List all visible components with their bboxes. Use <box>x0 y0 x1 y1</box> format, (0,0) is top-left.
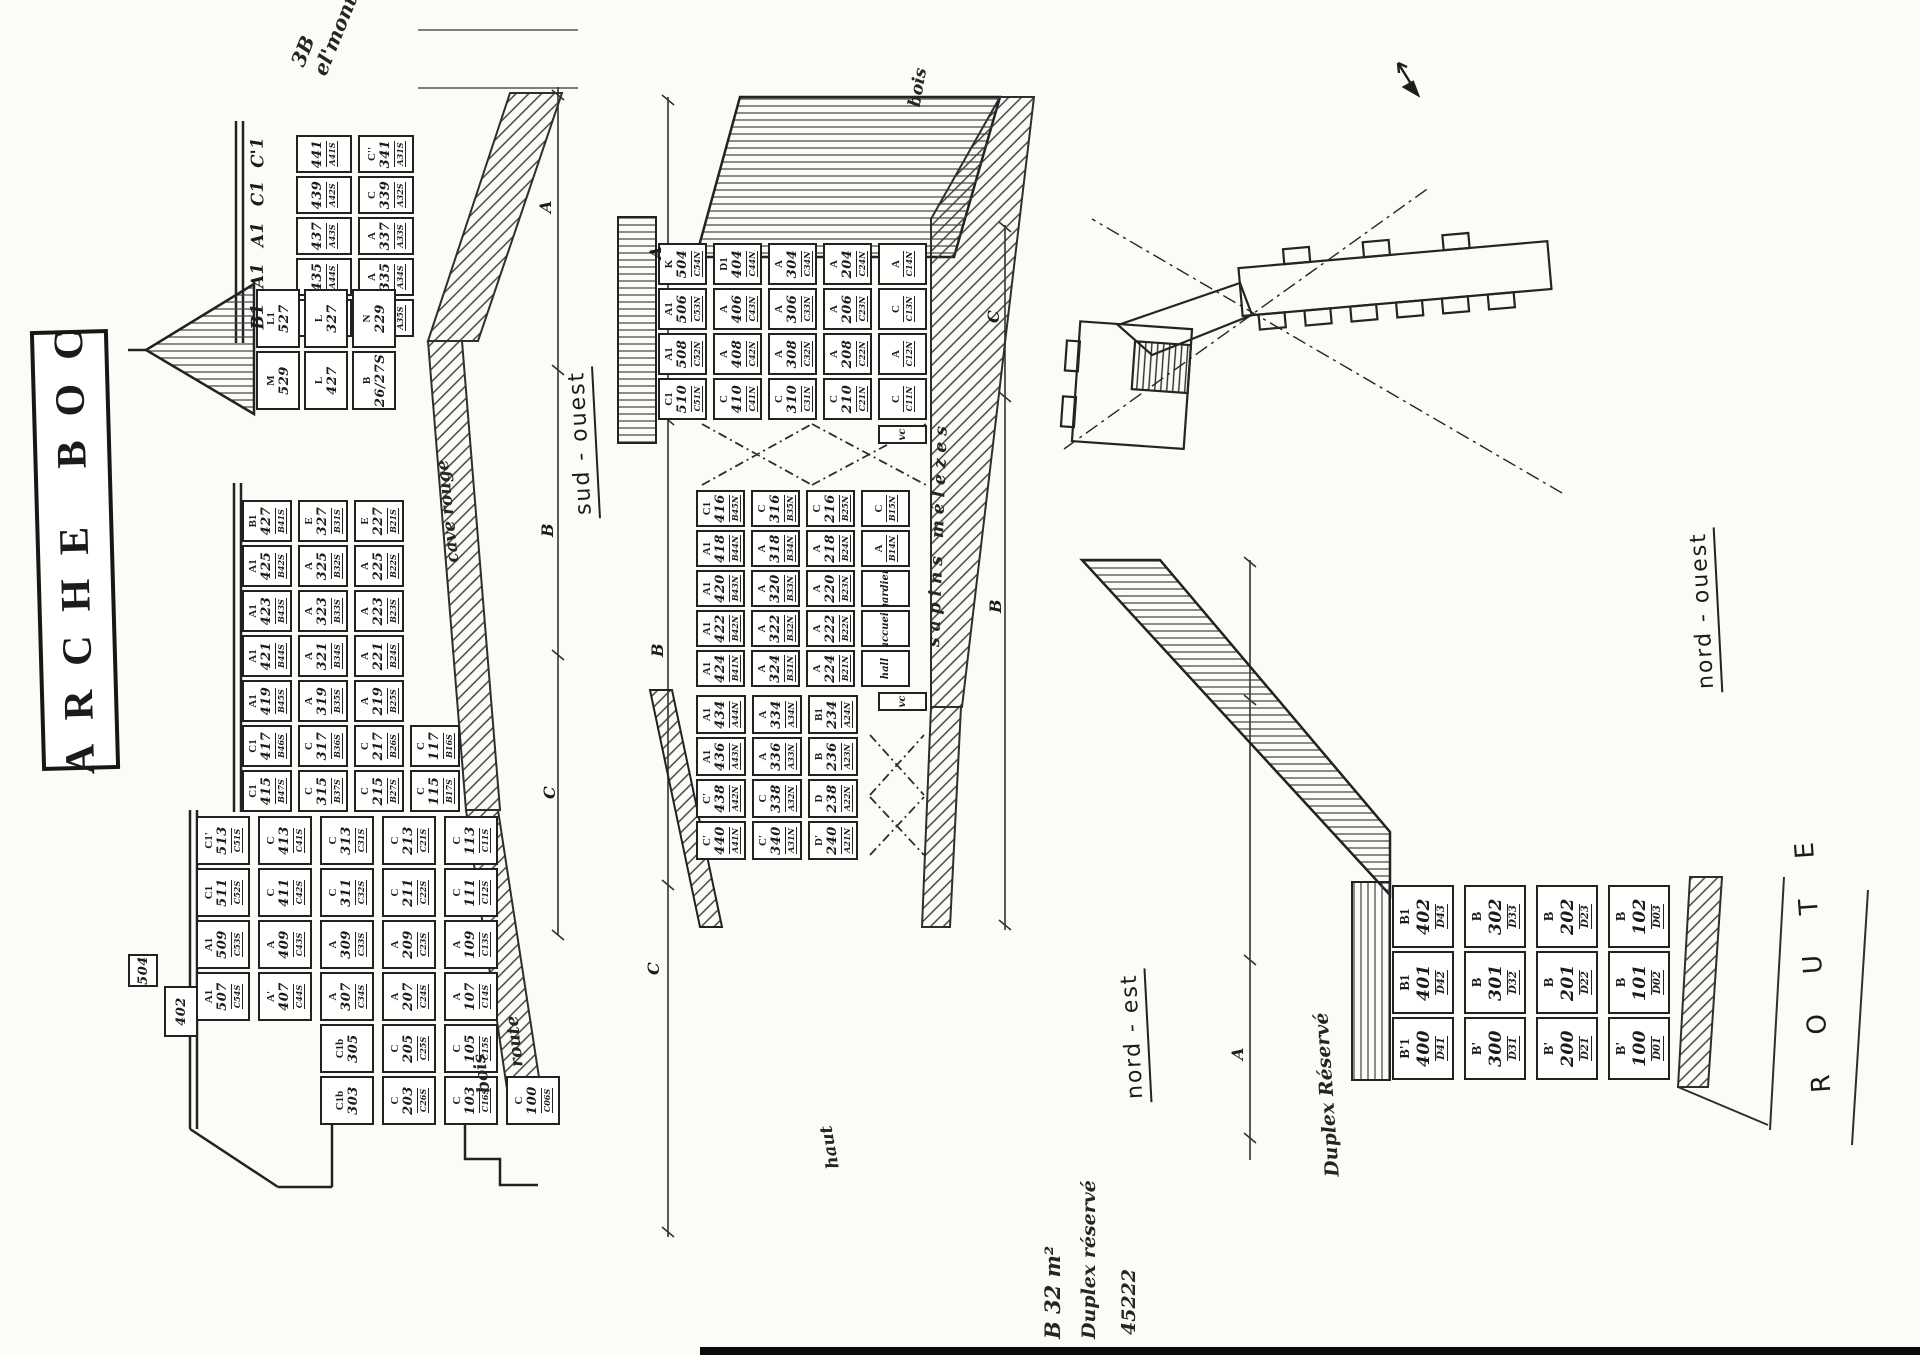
unit-code: B35S <box>331 688 343 714</box>
unit-type: A <box>265 941 277 949</box>
unit-number: 200 <box>1558 1030 1578 1067</box>
unit-type: B' <box>1614 1042 1630 1055</box>
unit-type: B1 <box>247 515 259 528</box>
unit-cell-206: A206C23N <box>823 288 872 330</box>
unit-code: B31S <box>331 508 343 534</box>
unit-cell: AB14N <box>861 530 910 567</box>
unit-number: 511 <box>215 878 230 907</box>
unit-cell-427: B1427B41S <box>242 500 292 542</box>
unit-code: B23S <box>387 598 399 624</box>
unit-number: 303 <box>346 1086 361 1115</box>
unit-number: 209 <box>401 930 416 959</box>
unit-code: D23 <box>1579 904 1592 929</box>
unit-code: A21N <box>841 827 853 854</box>
unit-code: A34S <box>394 264 406 289</box>
unit-number: 327 <box>315 507 330 536</box>
unit-number: 321 <box>315 642 330 671</box>
unit-type: C <box>359 787 371 795</box>
unit-type: C <box>451 889 463 897</box>
unit-cell-411: C411C42S <box>258 868 312 917</box>
unit-cell-229: N229 <box>352 289 396 348</box>
unit-code: B41S <box>275 508 287 534</box>
unit-type: E <box>359 517 371 524</box>
unit-number: 211 <box>401 878 416 907</box>
unit-number: 409 <box>277 930 292 959</box>
unit-number: 224 <box>823 654 838 683</box>
unit-cell-202: B202D23 <box>1536 885 1598 948</box>
unit-number: 513 <box>215 826 230 855</box>
unit-cell-101: B101D02 <box>1608 951 1670 1014</box>
unit-cell-416: C1416B45N <box>696 490 745 527</box>
unit-number: 304 <box>785 250 800 279</box>
unit-cell-205: C205C25S <box>382 1024 436 1073</box>
unit-cell-337: A337A33S <box>358 217 414 255</box>
unit-cell-401: B1401D42 <box>1392 951 1454 1014</box>
unit-number: 340 <box>769 826 784 855</box>
unit-number: 310 <box>785 385 800 414</box>
unit-cell-320: A320B33N <box>751 570 800 607</box>
unit-cell-300: B'300D31 <box>1464 1017 1526 1080</box>
unit-number: 302 <box>1486 898 1506 935</box>
dim-letter: C <box>644 962 663 975</box>
unit-type: A1 <box>701 750 713 763</box>
unit-type: K <box>663 260 675 269</box>
unit-number: 337 <box>378 222 393 251</box>
unit-cell-402: B1402D43 <box>1392 885 1454 948</box>
unit-number: 406 <box>730 295 745 324</box>
grid-header-so_upper: A1 <box>247 255 268 297</box>
unit-cell-440: C'440A41N <box>696 821 746 860</box>
unit-cell-307: A307C34S <box>320 972 374 1021</box>
unit-cell-427: L427 <box>304 351 348 410</box>
unit-type: B <box>1614 978 1630 987</box>
dim-letter: A <box>646 247 665 259</box>
unit-cell-210: C210C21N <box>823 378 872 420</box>
unit-number: 437 <box>310 222 325 251</box>
unit-type: N <box>361 315 373 323</box>
unit-code: B33S <box>331 598 343 624</box>
unit-number: 504 <box>136 956 151 985</box>
unit-number: 408 <box>730 340 745 369</box>
unit-type: C <box>303 742 315 750</box>
unit-number: 109 <box>463 930 478 959</box>
drawing-linework <box>0 0 1920 1355</box>
unit-type: C' <box>701 793 713 804</box>
unit-cell-234: B1234A24N <box>808 695 858 734</box>
unit-type: A <box>756 665 768 673</box>
unit-number: 336 <box>769 742 784 771</box>
unit-type: A <box>718 305 730 313</box>
unit-type: A <box>718 350 730 358</box>
unit-cell-316: C316B35N <box>751 490 800 527</box>
unit-code: B22N <box>839 615 851 642</box>
unit-code: C34S <box>355 984 367 1009</box>
unit-number: 113 <box>463 826 478 855</box>
unit-cell-413: C413C41S <box>258 816 312 865</box>
unit-code: C42N <box>746 341 758 368</box>
unit-number: 205 <box>401 1034 416 1063</box>
unit-number: 508 <box>675 340 690 369</box>
unit-code: B27S <box>387 778 399 804</box>
unit-type: C <box>265 837 277 845</box>
unit-number: 324 <box>768 654 783 683</box>
unit-cell-216: C216B25N <box>806 490 855 527</box>
unit-cell-305: C1b305 <box>320 1024 374 1073</box>
unit-type: A <box>811 625 823 633</box>
unit-number: 202 <box>1558 898 1578 935</box>
unit-cell: AC14N <box>878 243 927 285</box>
unit-type: B1 <box>813 708 825 721</box>
unit-cell-315: C315B37S <box>298 770 348 812</box>
unit-code: B41N <box>729 655 741 682</box>
unit-code: C51N <box>691 386 703 413</box>
unit-code: A34N <box>785 701 797 728</box>
unit-code: B31N <box>784 655 796 682</box>
unit-code: C53S <box>231 932 243 957</box>
unit-code: C44N <box>746 251 758 278</box>
unit-type: A <box>828 260 840 268</box>
unit-code: D33 <box>1507 904 1520 929</box>
unit-type: C1 <box>203 886 215 899</box>
unit-number: 400 <box>1414 1030 1434 1067</box>
unit-cell-310: C310C31N <box>768 378 817 420</box>
unit-type: A <box>811 545 823 553</box>
unit-type: C <box>366 191 378 199</box>
unit-cell-419: A1419B45S <box>242 680 292 722</box>
unit-cell-323: A323B33S <box>298 590 348 632</box>
unit-cell-vc: vc <box>878 425 927 444</box>
unit-type: C <box>415 787 427 795</box>
unit-type: C <box>451 1097 463 1105</box>
unit-code: A31N <box>785 827 797 854</box>
unit-cell-204: A204C24N <box>823 243 872 285</box>
unit-code: C32S <box>355 880 367 905</box>
unit-code: C25S <box>417 1036 429 1061</box>
unit-number: 234 <box>825 700 840 729</box>
unit-cell-423: A1423B43S <box>242 590 292 632</box>
unit-cell-407: A'407C44S <box>258 972 312 1021</box>
plan-readable-layer: B1A1A1C1C'1433A45SB333A35S435A44SA335A34… <box>0 0 1920 1355</box>
unit-code: A42N <box>729 785 741 812</box>
unit-number: 218 <box>823 534 838 563</box>
unit-cell-accueil: accueil <box>861 610 910 647</box>
unit-cell: CC13N <box>878 288 927 330</box>
unit-type: C <box>756 505 768 513</box>
unit-number: 301 <box>1486 964 1506 1001</box>
unit-number: 223 <box>371 597 386 626</box>
unit-type: D <box>813 795 825 803</box>
unit-code: A43S <box>326 223 338 248</box>
unit-cell-504: K504C54N <box>658 243 707 285</box>
unit-cell-100: C100C06S <box>506 1076 560 1125</box>
unit-type: C <box>513 1097 525 1105</box>
unit-cell-236: B236A23N <box>808 737 858 776</box>
unit-code: C13S <box>479 932 491 957</box>
unit-type: C1b <box>334 1039 346 1059</box>
unit-number: 107 <box>463 982 478 1011</box>
unit-type: C <box>451 1045 463 1053</box>
unit-code: B16S <box>443 733 455 759</box>
unit-type: B' <box>1470 1042 1486 1055</box>
unit-code: B32S <box>331 553 343 579</box>
unit-number: 427 <box>259 507 274 536</box>
unit-number: 504 <box>675 250 690 279</box>
unit-number: 207 <box>401 982 416 1011</box>
unit-cell-340: C'340A31N <box>752 821 802 860</box>
unit-cell-421: A1421B44S <box>242 635 292 677</box>
unit-type: A <box>303 652 315 660</box>
unit-cell-301: B301D32 <box>1464 951 1526 1014</box>
grid-header-so_upper: C'1 <box>247 132 268 174</box>
unit-type: C <box>389 1097 401 1105</box>
unit-code: D21 <box>1579 1036 1592 1061</box>
unit-number: 509 <box>215 930 230 959</box>
unit-type: A <box>773 305 785 313</box>
unit-number: 308 <box>785 340 800 369</box>
unit-type: A <box>890 260 902 268</box>
unit-cell-115: C115B17S <box>410 770 460 812</box>
unit-type: M <box>265 375 277 385</box>
unit-type: C1 <box>663 392 675 405</box>
unit-cell-336: A336A33N <box>752 737 802 776</box>
unit-number: 438 <box>713 784 728 813</box>
unit-number: 401 <box>1414 964 1434 1001</box>
unit-cell-hall: hall <box>861 650 910 687</box>
unit-cell-325: A325B32S <box>298 545 348 587</box>
unit-cell-334: A334A34N <box>752 695 802 734</box>
unit-type: A' <box>265 991 277 1002</box>
unit-cell-109: A109C13S <box>444 920 498 969</box>
unit-cell-117: C117B16S <box>410 725 460 767</box>
unit-type: B1 <box>1398 974 1414 990</box>
unit-cell-417: C1417B46S <box>242 725 292 767</box>
unit-type: A <box>828 350 840 358</box>
unit-type: B <box>1470 912 1486 921</box>
unit-number: 203 <box>401 1086 416 1115</box>
unit-number: 325 <box>315 552 330 581</box>
unit-number: 100 <box>1630 1030 1650 1067</box>
unit-cell-215: C215B27S <box>354 770 404 812</box>
unit-number: 319 <box>315 687 330 716</box>
unit-number: 210 <box>840 385 855 414</box>
unit-number: 201 <box>1558 964 1578 1001</box>
unit-number: 102 <box>1630 898 1650 935</box>
unit-type: A <box>303 697 315 705</box>
unit-code: C41S <box>293 828 305 853</box>
unit-type: C1 <box>701 502 713 515</box>
unit-type: C <box>757 795 769 803</box>
unit-number: 300 <box>1486 1030 1506 1067</box>
unit-type: A <box>811 585 823 593</box>
unit-type: A <box>756 625 768 633</box>
unit-number: 240 <box>825 826 840 855</box>
unit-cell-420: A1420B43N <box>696 570 745 607</box>
unit-number: 527 <box>277 304 292 333</box>
unit-type: C <box>811 505 823 513</box>
unit-type: A <box>757 753 769 761</box>
unit-code: B46S <box>275 733 287 759</box>
unit-cell-303: C1b303 <box>320 1076 374 1125</box>
unit-cell-213: C213C21S <box>382 816 436 865</box>
unit-number: 311 <box>339 878 354 907</box>
unit-number: 316 <box>768 494 783 523</box>
unit-type: C <box>873 505 885 513</box>
unit-type: A1 <box>247 559 259 572</box>
unit-code: A41N <box>729 827 741 854</box>
unit-code: D02 <box>1651 970 1664 995</box>
unit-number: 410 <box>730 385 745 414</box>
unit-type: C1b <box>334 1091 346 1111</box>
unit-cell-338: C338A32N <box>752 779 802 818</box>
unit-type: C <box>451 837 463 845</box>
unit-cell-100: B'100D01 <box>1608 1017 1670 1080</box>
unit-type: C <box>890 395 902 403</box>
unit-cell-415: C1415B47S <box>242 770 292 812</box>
unit-cell-227: E227B21S <box>354 500 404 542</box>
unit-number: 439 <box>310 181 325 210</box>
unit-cell-508: A1508C52N <box>658 333 707 375</box>
scan-edge-strip <box>700 1347 1920 1355</box>
unit-type: C <box>890 305 902 313</box>
unit-cell-513: C1'513C51S <box>196 816 250 865</box>
unit-number: 306 <box>785 295 800 324</box>
unit-number: 411 <box>277 878 292 907</box>
unit-number: 313 <box>339 826 354 855</box>
unit-cell-321: A321B34S <box>298 635 348 677</box>
unit-cell-238: D238A22N <box>808 779 858 818</box>
unit-code: B36S <box>331 733 343 759</box>
unit-code: B23N <box>839 575 851 602</box>
unit-code: C54N <box>691 251 703 278</box>
unit-code: C24S <box>417 984 429 1009</box>
unit-code: D01 <box>1651 1036 1664 1061</box>
unit-code: C33S <box>355 932 367 957</box>
unit-type: A1 <box>701 622 713 635</box>
unit-type: A1 <box>247 604 259 617</box>
unit-code: C34N <box>801 251 813 278</box>
unit-code: B26S <box>387 733 399 759</box>
title-box: ARCHE BOC <box>30 329 120 771</box>
unit-number: 215 <box>371 777 386 806</box>
unit-type: A <box>873 545 885 553</box>
grid-header-so_upper: C1 <box>247 173 268 215</box>
unit-cell-200: B'200D21 <box>1536 1017 1598 1080</box>
unit-cell-424: A1424B41N <box>696 650 745 687</box>
unit-type: C'' <box>366 147 378 161</box>
unit-number: 320 <box>768 574 783 603</box>
unit-code: C11N <box>903 386 915 413</box>
unit-type: B <box>1614 912 1630 921</box>
unit-type: A1 <box>701 662 713 675</box>
unit-code: C43N <box>746 296 758 323</box>
unit-code: B21S <box>387 508 399 534</box>
unit-type: C <box>389 889 401 897</box>
nord-ouest-ground <box>1678 877 1868 1145</box>
unit-code: A41S <box>326 141 338 166</box>
unit-cell-word: accueil <box>880 610 891 647</box>
unit-cell-224: A224B21N <box>806 650 855 687</box>
unit-type: A <box>366 273 378 281</box>
unit-cell-211: C211C22S <box>382 868 436 917</box>
unit-number: 206 <box>840 295 855 324</box>
unit-type: C <box>718 395 730 403</box>
unit-cell-408: A408C42N <box>713 333 762 375</box>
unit-cell-word: hall <box>880 658 891 679</box>
unit-type: L <box>313 377 325 384</box>
unit-type: A1 <box>203 938 215 951</box>
unit-type: C' <box>757 835 769 846</box>
unit-number: 338 <box>769 784 784 813</box>
unit-cell-441: 441A41S <box>296 135 352 173</box>
unit-code: C23N <box>856 296 868 323</box>
unit-number: 117 <box>427 732 442 761</box>
unit-type: A <box>811 665 823 673</box>
unit-number: 402 <box>174 997 189 1026</box>
unit-number: 422 <box>713 614 728 643</box>
unit-code: C14N <box>903 251 915 278</box>
unit-cell-304: A304C34N <box>768 243 817 285</box>
unit-code: B44S <box>275 643 287 669</box>
unit-code: C51S <box>231 828 243 853</box>
unit-cell-207: A207C24S <box>382 972 436 1021</box>
unit-code: A31S <box>394 141 406 166</box>
unit-code: B14N <box>886 535 898 562</box>
unit-number: 309 <box>339 930 354 959</box>
unit-code: A23N <box>841 743 853 770</box>
unit-code: D22 <box>1579 970 1592 995</box>
unit-type: A <box>756 545 768 553</box>
unit-cell-gardien: gardien <box>861 570 910 607</box>
unit-code: B24N <box>839 535 851 562</box>
unit-number: 222 <box>823 614 838 643</box>
unit-number: 208 <box>840 340 855 369</box>
grid-header-so_upper: B1 <box>247 296 268 338</box>
unit-type: C <box>389 1045 401 1053</box>
unit-type: B <box>361 377 373 384</box>
chalet-roof <box>128 284 254 414</box>
dim-letter: B <box>538 523 557 537</box>
page-title: ARCHE BOC <box>44 305 106 795</box>
unit-code: B45S <box>275 688 287 714</box>
dim-letter: C <box>984 310 1003 323</box>
scanned-plan-page: B1A1A1C1C'1433A45SB333A35S435A44SA335A34… <box>0 0 1920 1355</box>
unit-type: A1 <box>701 542 713 555</box>
unit-number: 436 <box>713 742 728 771</box>
unit-cell-422: A1422B42N <box>696 610 745 647</box>
unit-number: 419 <box>259 687 274 716</box>
unit-type: A <box>389 941 401 949</box>
unit-cell-217: C217B26S <box>354 725 404 767</box>
unit-cell-425: A1425B42S <box>242 545 292 587</box>
dim-letter: A <box>1228 1048 1247 1060</box>
unit-type: A1 <box>203 990 215 1003</box>
unit-type: C1 <box>247 739 259 752</box>
unit-cell-510: C1510C51N <box>658 378 707 420</box>
unit-type: A1 <box>663 347 675 360</box>
unit-code: B33N <box>784 575 796 602</box>
unit-type: A <box>359 652 371 660</box>
unit-number: 236 <box>825 742 840 771</box>
unit-number: 529 <box>277 366 292 395</box>
unit-cell-511: C1511C52S <box>196 868 250 917</box>
unit-type: A <box>451 941 463 949</box>
handwritten-b32-note-line2: Duplex réservé <box>1078 1180 1100 1339</box>
unit-code: A32S <box>394 182 406 207</box>
unit-type: C <box>828 395 840 403</box>
unit-code: C44S <box>293 984 305 1009</box>
unit-code: C13N <box>903 296 915 323</box>
unit-code: B15N <box>886 495 898 522</box>
